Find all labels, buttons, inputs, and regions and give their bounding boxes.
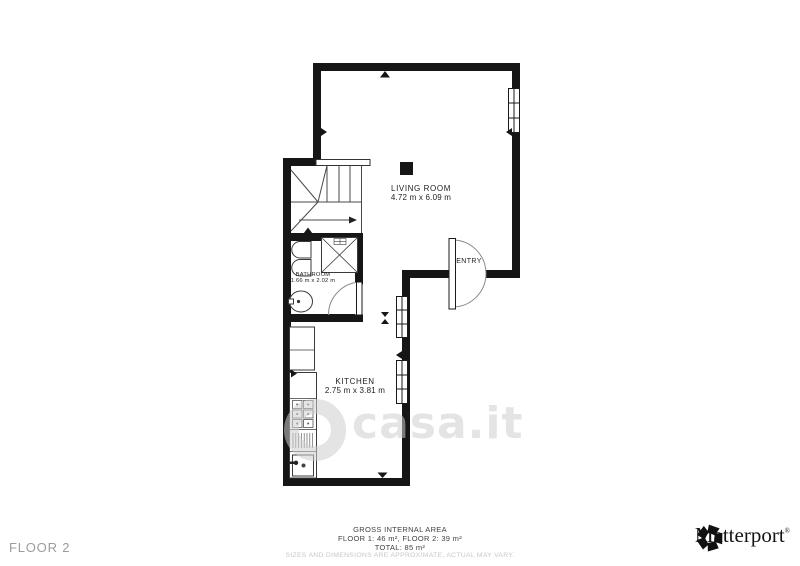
kitchen-dims: 2.75 m x 3.81 m <box>305 386 405 395</box>
marker-passage-up <box>381 319 389 324</box>
marker-left-wall <box>321 128 327 136</box>
floorplan-page: casa.it LIVING ROOM 4.72 m x 6.09 m ENTR… <box>0 0 800 566</box>
bathroom-dims: 1.66 m x 2.02 m <box>282 278 344 284</box>
shower <box>322 238 358 273</box>
marker-top-wall <box>380 71 390 78</box>
kitchen-sink <box>289 455 314 476</box>
bathroom-label: BATHROOM 1.66 m x 2.02 m <box>282 272 344 284</box>
kitchen-name: KITCHEN <box>305 377 405 386</box>
living-room-name: LIVING ROOM <box>351 184 491 193</box>
floor-label: FLOOR 2 <box>9 540 70 555</box>
disclaimer-text: SIZES AND DIMENSIONS ARE APPROXIMATE, AC… <box>0 552 800 561</box>
column <box>400 162 413 175</box>
entry-label: ENTRY <box>444 258 494 265</box>
total-area: TOTAL: 85 m² <box>0 544 800 553</box>
wall-entry-right <box>484 270 520 278</box>
kitchen-label: KITCHEN 2.75 m x 3.81 m <box>305 377 405 395</box>
brand-registered-mark: ® <box>785 527 790 535</box>
living-room-label: LIVING ROOM 4.72 m x 6.09 m <box>351 184 491 202</box>
wall-bath-bottom <box>283 314 363 322</box>
toilet <box>292 242 311 259</box>
entry-name: ENTRY <box>444 258 494 265</box>
window-living-right <box>509 89 520 133</box>
entry-door <box>449 239 486 310</box>
marker-bath-top <box>304 228 313 234</box>
living-room-dims: 4.72 m x 6.09 m <box>351 193 491 202</box>
bathroom-sink <box>289 291 313 312</box>
wall-bottom <box>283 478 410 486</box>
wall-top <box>313 63 520 71</box>
bathroom-door <box>329 282 364 315</box>
marker-passage-down <box>381 312 389 317</box>
floorplan-drawing <box>0 0 800 566</box>
marker-bottom-wall <box>378 473 388 479</box>
matterport-pinwheel-icon <box>695 523 725 553</box>
window-kitchen-upper <box>397 297 408 338</box>
marker-kitchen-right <box>396 351 402 359</box>
matterport-logo: Matterport® <box>695 523 790 548</box>
wall-living-left <box>313 63 321 166</box>
kitchen-fixtures <box>289 327 317 478</box>
fridge-cabinet <box>290 327 315 370</box>
area-summary: GROSS INTERNAL AREA FLOOR 1: 46 m², FLOO… <box>0 526 800 561</box>
